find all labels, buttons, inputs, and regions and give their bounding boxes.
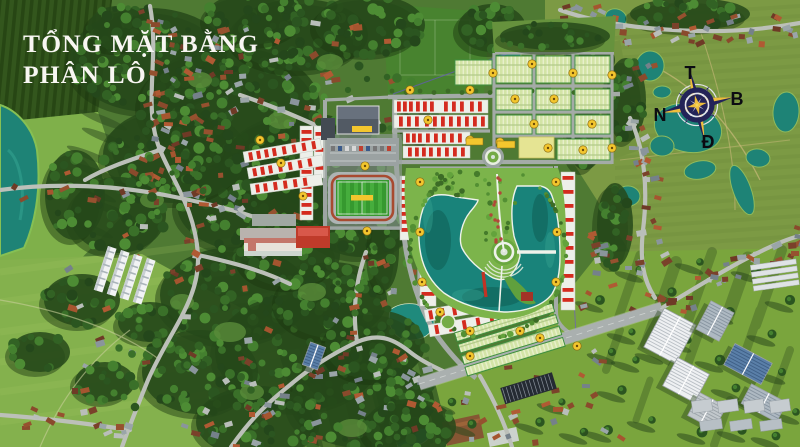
svg-text:B: B [731,89,744,109]
svg-text:N: N [654,105,667,125]
svg-text:TỔNG MẶT BẰNG: TỔNG MẶT BẰNG [23,29,259,58]
svg-text:Đ: Đ [702,132,715,152]
svg-text:T: T [685,63,696,83]
svg-text:PHÂN LÔ: PHÂN LÔ [23,60,147,89]
